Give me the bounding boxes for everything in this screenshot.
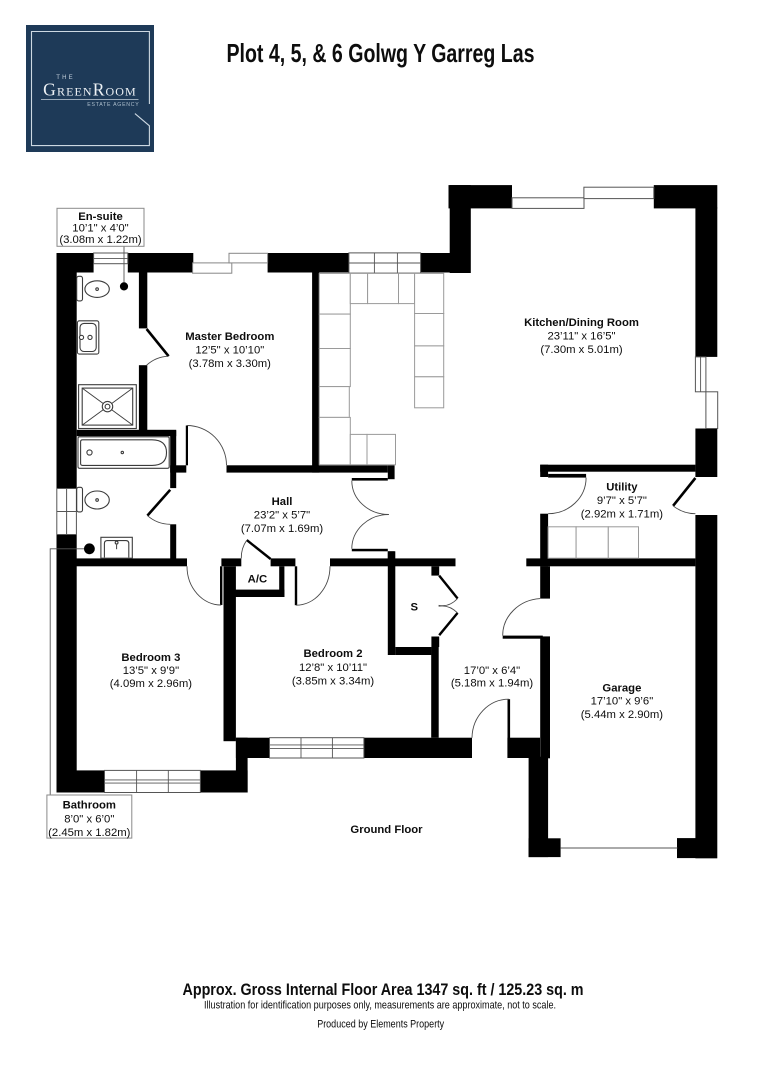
svg-text:Bedroom 2: Bedroom 2 (303, 648, 362, 660)
svg-text:Master Bedroom: Master Bedroom (185, 331, 274, 343)
svg-text:Illustration for identificatio: Illustration for identification purposes… (204, 1000, 556, 1012)
svg-text:Garage: Garage (602, 683, 641, 695)
svg-text:Kitchen/Dining Room: Kitchen/Dining Room (524, 317, 639, 329)
svg-text:(7.30m x 5.01m): (7.30m x 5.01m) (540, 344, 622, 356)
svg-text:Utility: Utility (606, 482, 638, 494)
svg-text:Produced by Elements Property: Produced by Elements Property (317, 1018, 444, 1030)
svg-text:23’2" x 5’7": 23’2" x 5’7" (254, 510, 310, 522)
svg-text:17’10" x 9’6": 17’10" x 9’6" (591, 696, 654, 708)
svg-text:Approx. Gross Internal Floor A: Approx. Gross Internal Floor Area 1347 s… (183, 980, 584, 999)
svg-text:(7.07m x 1.69m): (7.07m x 1.69m) (241, 523, 323, 535)
svg-text:9’7" x 5’7": 9’7" x 5’7" (597, 495, 647, 507)
svg-text:(3.78m x 3.30m): (3.78m x 3.30m) (189, 358, 271, 370)
svg-text:Bedroom 3: Bedroom 3 (121, 652, 180, 664)
svg-text:ESTATE AGENCY: ESTATE AGENCY (87, 102, 139, 108)
svg-text:Hall: Hall (272, 496, 293, 508)
svg-text:(4.09m x 2.96m): (4.09m x 2.96m) (110, 678, 192, 690)
svg-text:En-suite: En-suite (78, 211, 123, 223)
svg-text:12’8" x 10’11": 12’8" x 10’11" (299, 662, 367, 674)
svg-text:12’5" x 10’10": 12’5" x 10’10" (195, 345, 264, 357)
svg-text:(3.08m x 1.22m): (3.08m x 1.22m) (59, 234, 141, 246)
svg-text:(2.92m x 1.71m): (2.92m x 1.71m) (581, 509, 663, 521)
svg-text:(5.44m x 2.90m): (5.44m x 2.90m) (581, 709, 663, 721)
svg-text:Bathroom: Bathroom (63, 800, 116, 812)
svg-text:A/C: A/C (248, 573, 267, 585)
svg-text:10’1" x 4’0": 10’1" x 4’0" (72, 223, 128, 235)
svg-text:S: S (411, 601, 419, 613)
svg-text:(3.85m x 3.34m): (3.85m x 3.34m) (292, 675, 374, 687)
svg-text:(5.18m x 1.94m): (5.18m x 1.94m) (451, 677, 533, 689)
svg-text:17’0" x 6’4": 17’0" x 6’4" (464, 665, 520, 677)
svg-text:13’5" x 9’9": 13’5" x 9’9" (123, 665, 179, 677)
svg-text:GreenRoom: GreenRoom (43, 80, 137, 100)
svg-text:Ground Floor: Ground Floor (350, 824, 423, 836)
svg-text:Plot 4, 5, & 6 Golwg Y Garreg: Plot 4, 5, & 6 Golwg Y Garreg Las (227, 38, 535, 68)
svg-text:23’11" x 16’5": 23’11" x 16’5" (547, 331, 615, 343)
svg-text:8’0" x 6’0": 8’0" x 6’0" (64, 813, 114, 825)
svg-text:(2.45m x 1.82m): (2.45m x 1.82m) (48, 827, 130, 839)
